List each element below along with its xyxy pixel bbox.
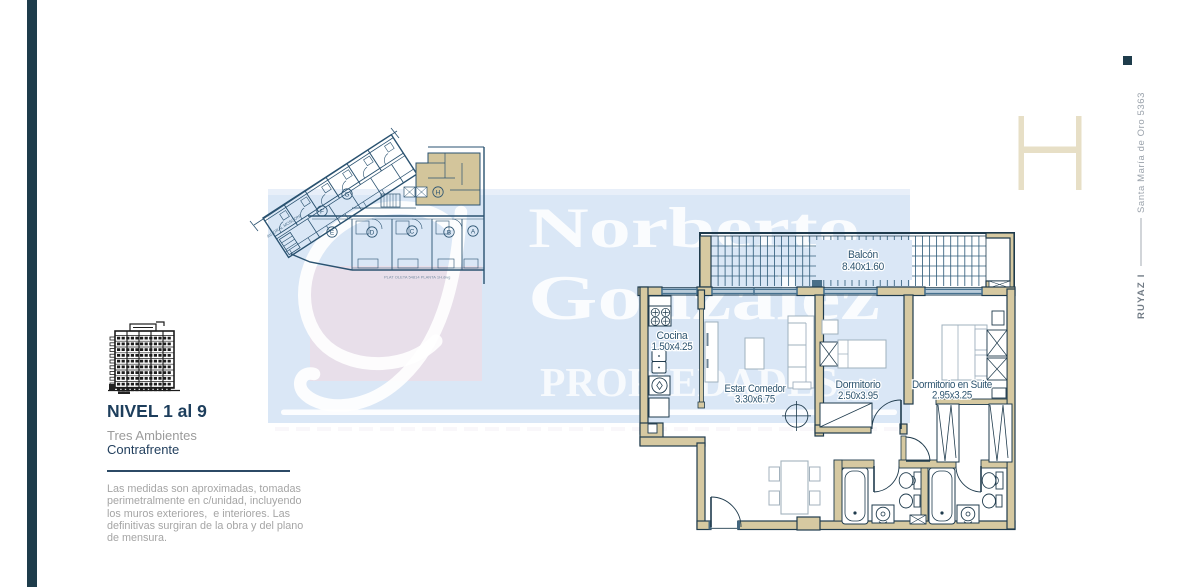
svg-text:2.50x3.95: 2.50x3.95 bbox=[838, 390, 878, 402]
svg-text:8.40x1.60: 8.40x1.60 bbox=[842, 261, 884, 273]
svg-text:A: A bbox=[471, 228, 476, 235]
svg-text:B: B bbox=[447, 229, 451, 236]
svg-text:3.30x6.75: 3.30x6.75 bbox=[735, 394, 775, 406]
svg-text:H: H bbox=[436, 189, 441, 196]
svg-text:D: D bbox=[370, 229, 375, 236]
svg-text:Norberto: Norberto bbox=[528, 197, 860, 260]
svg-text:2.95x3.25: 2.95x3.25 bbox=[932, 390, 972, 402]
svg-text:F: F bbox=[320, 208, 324, 215]
svg-text:1.50x4.25: 1.50x4.25 bbox=[652, 341, 693, 353]
svg-text:G: G bbox=[344, 191, 349, 198]
svg-text:E: E bbox=[330, 229, 335, 236]
svg-text:PLAT OLETA 54814 PLANTA 1H.dwg: PLAT OLETA 54814 PLANTA 1H.dwg bbox=[384, 275, 450, 280]
svg-text:Santa María de Oro 5363: Santa María de Oro 5363 bbox=[1136, 92, 1147, 213]
svg-text:C: C bbox=[410, 228, 415, 235]
svg-text:Balcón: Balcón bbox=[848, 249, 878, 261]
svg-text:RUYAZ I: RUYAZ I bbox=[1136, 273, 1147, 319]
